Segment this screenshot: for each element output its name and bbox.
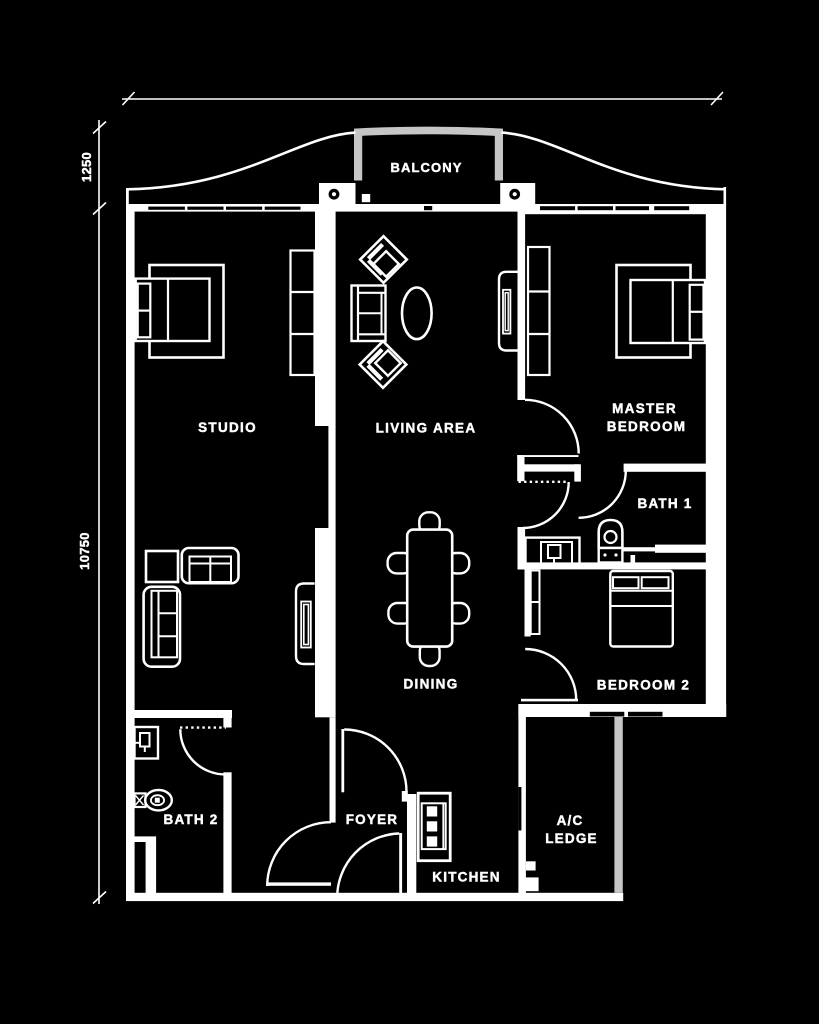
svg-text:DINING: DINING: [403, 677, 458, 692]
svg-text:BATH 2: BATH 2: [164, 812, 219, 827]
svg-text:10750: 10750: [77, 532, 92, 570]
svg-text:1250: 1250: [79, 152, 94, 182]
svg-text:KITCHEN: KITCHEN: [432, 870, 500, 885]
svg-text:BEDROOM 2: BEDROOM 2: [597, 678, 690, 693]
svg-text:BALCONY: BALCONY: [391, 160, 463, 175]
svg-text:A/C: A/C: [557, 813, 584, 828]
svg-text:BEDROOM: BEDROOM: [607, 419, 687, 434]
svg-text:BATH 1: BATH 1: [638, 496, 693, 511]
svg-text:LEDGE: LEDGE: [545, 831, 598, 846]
svg-text:LIVING AREA: LIVING AREA: [376, 421, 477, 436]
svg-text:STUDIO: STUDIO: [198, 420, 257, 435]
svg-text:FOYER: FOYER: [346, 812, 399, 827]
svg-text:MASTER: MASTER: [612, 401, 677, 416]
